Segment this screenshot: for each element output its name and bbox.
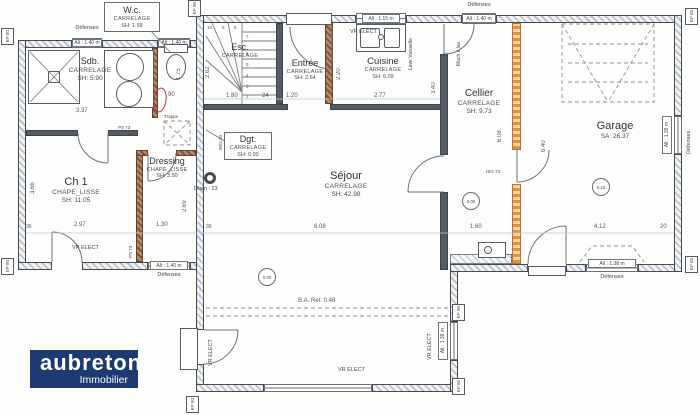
wall-garage-right-b [674, 154, 682, 272]
defenses-label: Défenses [686, 118, 692, 154]
vr-elect-label: VR ELECT [208, 330, 214, 366]
dim: 90 [168, 92, 175, 98]
dim: 6.08 [497, 124, 503, 142]
room-label-wc: W.c. CARRELAGE SH: 1.58 [104, 2, 160, 32]
logo-name: aubreton [40, 352, 128, 374]
wall-top-sdb-b [102, 40, 158, 48]
defenses-text: Défenses [467, 2, 490, 8]
dim: 3.37 [76, 108, 88, 114]
room-area: SH: 6.09 [372, 74, 393, 81]
stair-step: 5 [246, 62, 249, 67]
room-name: Sdb. [81, 56, 100, 67]
room-label-entree: Entrée CARRELAGE SH: 2.64 [283, 58, 327, 82]
wall-top-esc [196, 15, 287, 23]
ep80-box: EP 80 [685, 256, 698, 273]
dim: 6.40 [541, 134, 547, 152]
wall-top-entree-cuisine [331, 15, 356, 23]
level-marker-garage: 0.22 [592, 178, 610, 196]
iso73-label: ISO 73 [486, 169, 500, 174]
vr-elect-label: VR ELECT [350, 29, 377, 35]
sink-tap [378, 34, 384, 40]
level-marker-cellier: 0.00 [462, 192, 480, 210]
defenses-label: Défenses [148, 272, 190, 278]
wall-left [18, 40, 26, 270]
room-finish: CHAPE_LISSE [147, 167, 188, 174]
defenses-label: Défenses [462, 2, 496, 8]
wall-esc-entree [276, 23, 283, 104]
dim-text: 6.40 [541, 140, 547, 152]
garage-door-swing [562, 24, 654, 102]
dim-text: 1.20 [286, 93, 298, 99]
room-area: SH: 42.98 [332, 191, 361, 199]
dim: 2.77 [374, 93, 386, 99]
garage-service-door-frame [528, 266, 566, 276]
stair-step: 4 [246, 73, 249, 78]
wall-bottom-ch1-b [82, 262, 148, 270]
room-area: SH: 5.90 [77, 75, 102, 83]
dim-text: 3.37 [76, 108, 88, 114]
ep80-text: EP 80 [5, 260, 10, 272]
room-finish: CARRELAGE [325, 183, 368, 191]
ep80-text: EP 80 [456, 380, 461, 392]
room-finish: CHAPE_LISSE [52, 189, 100, 197]
vr-elect-label: VR ELECT [338, 367, 365, 373]
room-label-dressing: Dressing CHAPE_LISSE SH: 3.50 [140, 156, 194, 180]
room-finish: CARRELAGE [230, 145, 267, 152]
window-garage-right [674, 116, 682, 154]
stair-step: 2 [246, 94, 249, 99]
dim: 2.62 [205, 60, 211, 78]
dim-text: 1.60 [470, 224, 482, 230]
dim-text: 6.08 [314, 224, 326, 230]
defenses-label: Défenses [586, 274, 638, 280]
lave-vaisselle-label: Lave Vaisselle [408, 28, 414, 70]
ps73-label: PS 73 [118, 125, 130, 130]
entry-door-frame [286, 13, 332, 25]
window-alt-label: Alt : 1.40 m [150, 261, 188, 270]
vr-text: VR ELECT [338, 367, 365, 373]
wall-bottom-cellier [450, 264, 528, 272]
vr-text: VR ELECT [72, 245, 99, 251]
dim: 1.30 [156, 222, 168, 228]
dim: 3.66 [30, 176, 36, 194]
window-alt-label: Alt : 1.38 m [588, 259, 636, 268]
window-bay-sejour [264, 384, 372, 392]
mach-a-laver-text: Mach à lav. [456, 41, 462, 66]
window-sejour-right [450, 322, 458, 360]
dgt-leader-line [206, 130, 226, 142]
dim-text: 24 [262, 93, 269, 99]
wall-garage-right-a [674, 15, 682, 116]
wall-sejour-bottom-b [372, 384, 458, 392]
aubreton-logo: aubreton Immobilier [30, 350, 138, 388]
ba-ret-text: B.A. Ret: 0.48 [298, 298, 335, 304]
diam-text: Diam : 23 [194, 186, 218, 192]
room-label-sdb: Sdb. CARRELAGE SH: 5.90 [58, 56, 122, 82]
wall-top-garage [496, 15, 682, 23]
window-alt-label: Alt : 1.40 m [72, 39, 102, 47]
cellier-basin-drain [484, 246, 492, 254]
window-alt-label: Alt : 1.38 m [662, 116, 672, 154]
dim-text: 36 [26, 224, 32, 230]
stair-step: 1 [246, 103, 249, 108]
toilet-tank [164, 44, 188, 53]
stairs-treads [206, 23, 276, 104]
defenses-text: Défenses [157, 272, 180, 278]
room-name: Cuisine [367, 56, 399, 67]
door-size-label: 90/2.10 [218, 120, 223, 150]
ep80-text: EP 80 [192, 2, 197, 14]
wall-top-cuisine-cellier [406, 15, 462, 23]
dim: 6.08 [314, 224, 326, 230]
dim: 24 [262, 93, 269, 99]
stair-step: 10 [207, 25, 212, 30]
ep80-box: EP 80 [452, 304, 465, 321]
duct-circle [204, 172, 216, 184]
dim: 1.60 [470, 224, 482, 230]
wall-sejour-top-b [330, 104, 442, 110]
door-arc-sejour-cellier [408, 156, 444, 192]
room-area: SH: 9.73 [466, 108, 491, 116]
dim: 36 [26, 224, 32, 230]
room-label-cellier: Cellier CARRELAGE SH: 9.73 [450, 88, 508, 116]
wall-top-sdb-a [18, 40, 72, 48]
door-arc-sdb-ch1 [78, 133, 108, 163]
room-finish: CARRELAGE [458, 100, 501, 108]
door-arc-garage-service [528, 226, 566, 264]
room-area: SH: 3.50 [156, 173, 177, 180]
window-alt-label: Alt : 1.15 m [362, 14, 400, 23]
ep80-box: EP 80 [452, 378, 465, 395]
dim-text: 1.30 [156, 222, 168, 228]
dim: 20 [660, 224, 667, 230]
mach-a-laver-label: Mach à lav. [456, 28, 462, 66]
ep80-text: EP 80 [689, 258, 694, 270]
room-finish: CARRELAGE [365, 67, 402, 74]
defenses-label: Défenses [70, 25, 104, 31]
alt-text: Alt : 1.38 m [599, 261, 624, 267]
stair-step: 3 [246, 84, 249, 89]
vr-text: VR ELECT [350, 29, 377, 35]
room-label-ch1: Ch 1 CHAPE_LISSE SH: 11.05 [44, 176, 108, 205]
room-finish: CARRELAGE [114, 16, 151, 23]
trappe-label: Trappe [164, 114, 178, 119]
room-finish: CARRELAGE [69, 67, 112, 75]
level-value: 0.00 [467, 199, 476, 204]
level-marker-sejour: 0.00 [258, 268, 276, 286]
room-area: SH: 11.05 [62, 197, 90, 205]
defenses-text: Défenses [686, 131, 692, 154]
wall-insulation-a [512, 23, 521, 150]
dim-text: 2.77 [374, 93, 386, 99]
wall-sejour-bottom-a [196, 384, 264, 392]
ep80-box: EP 80 [186, 396, 199, 413]
floor-plan: Alt : 1.40 m Alt : 1.40 m Alt : 1.15 m A… [0, 0, 700, 415]
diam-label: Diam : 23 [194, 186, 218, 192]
room-label-sejour: Séjour CARRELAGE SH: 42.98 [316, 170, 376, 199]
trappe-text: Trappe [164, 114, 178, 119]
wall-sejour-left-a [196, 15, 204, 330]
dim-text: 36 [206, 224, 212, 230]
wall-sdb-ch1-a [26, 130, 78, 136]
room-name: Entrée [292, 58, 319, 69]
ep80-text: EP 80 [689, 10, 694, 22]
logo-tagline: Immobilier [40, 375, 128, 386]
stair-step: 9 [222, 25, 225, 30]
dim-text: 2.20 [336, 68, 342, 80]
dim-text: 3.66 [30, 182, 36, 194]
iso73-text: ISO 73 [486, 169, 500, 174]
dim: 36 [206, 224, 212, 230]
room-name: W.c. [123, 5, 141, 16]
room-name: Dgt. [240, 134, 257, 145]
wall-sdb-ch1-b [108, 130, 138, 136]
dim: 1.80 [226, 93, 238, 99]
ep80-box: EP 80 [1, 258, 14, 275]
dim: 1.75 [176, 64, 182, 80]
room-name: Cellier [465, 88, 493, 100]
room-finish: CARRELAGE [222, 53, 259, 60]
dim-text: 2.62 [205, 66, 211, 78]
dim: 2.20 [336, 62, 342, 80]
room-label-cuisine: Cuisine CARRELAGE SH: 6.09 [358, 56, 408, 81]
ep80-text: EP 80 [456, 306, 461, 318]
dim-text: 20 [660, 224, 667, 230]
dim: 3.40 [431, 76, 437, 94]
level-value: 0.00 [263, 275, 272, 280]
dim: 4.12 [594, 224, 606, 230]
dim-text: 90 [168, 92, 175, 98]
room-name: Garage [597, 120, 634, 133]
room-name: Ch 1 [64, 176, 87, 189]
ps73-label: PS 73 [128, 230, 133, 258]
ep80-box: EP 80 [1, 28, 14, 45]
ba-ret-label: B.A. Ret: 0.48 [298, 298, 335, 304]
washbasin-2 [116, 81, 142, 107]
wall-bottom-ch1-a [18, 262, 52, 270]
wall-insulation-b [512, 184, 521, 264]
door-size-text: 90/2.10 [218, 135, 223, 150]
room-area: SH: 0.99 [237, 152, 258, 159]
dimension-lines [26, 99, 674, 233]
cellier-basin [478, 242, 506, 258]
ep80-box: EP 80 [188, 0, 201, 17]
level-value: 0.22 [597, 185, 606, 190]
ba-retaining-lines [206, 308, 448, 316]
room-finish: CARRELAGE [287, 69, 324, 76]
trappe-hatch-box [164, 121, 190, 145]
room-area: SH: 2.64 [294, 75, 315, 82]
room-area: SH: 1.58 [121, 23, 142, 30]
sejour-side-door-frame [180, 328, 198, 370]
dim-text: 2.69 [182, 200, 188, 212]
window-alt-label: Alt : 1.40 m [462, 14, 496, 23]
alt-text: Alt : 1.40 m [156, 263, 181, 269]
dim-text: 6.08 [497, 130, 503, 142]
alt-text: Alt : 1.38 m [664, 122, 670, 147]
dim: 2.97 [74, 222, 86, 228]
alt-text: Alt : 1.38 m [440, 328, 446, 353]
room-label-garage: Garage SA: 26.37 [584, 120, 646, 141]
vr-elect-label: VR ELECT [72, 245, 99, 251]
alt-text: Alt : 1.40 m [74, 40, 99, 46]
wall-bottom-garage-a [566, 264, 586, 272]
defenses-text: Défenses [600, 274, 623, 280]
vr-elect-label: VR ELECT [427, 324, 433, 360]
ps73-text: PS 73 [118, 125, 130, 130]
dim-text: 1.75 [176, 68, 182, 80]
stair-step: 6 [246, 51, 249, 56]
dim-text: 2.97 [74, 222, 86, 228]
room-name: Séjour [330, 170, 362, 183]
vr-text: VR ELECT [208, 339, 214, 366]
dim: 1.20 [286, 93, 298, 99]
alt-text: Alt : 1.40 m [466, 16, 491, 22]
wall-cellier-left-b [440, 192, 448, 270]
ps73-text: PS 73 [128, 246, 133, 258]
ep80-text: EP 80 [190, 398, 195, 410]
window-alt-label: Alt : 1.38 m [438, 322, 448, 360]
dim-text: 4.12 [594, 224, 606, 230]
vr-text: VR ELECT [427, 333, 433, 360]
dim: 2.69 [182, 194, 188, 212]
alt-text: Alt : 1.15 m [368, 16, 393, 22]
door-arc-cellier-garage [517, 150, 549, 182]
room-area: SA: 26.37 [601, 133, 630, 141]
stair-step: 8 [234, 25, 237, 30]
sink-drainer [384, 28, 400, 48]
defenses-text: Défenses [75, 25, 98, 31]
ep80-text: EP 80 [5, 30, 10, 42]
room-name: Dressing [149, 156, 185, 167]
lave-vaisselle-text: Lave Vaisselle [408, 38, 414, 70]
room-label-dgt: Dgt. CARRELAGE SH: 0.99 [224, 132, 272, 160]
ep80-box: EP 80 [685, 8, 698, 25]
wall-cellier-left-a [440, 54, 448, 155]
room-label-esc: Esc. CARRELAGE [218, 42, 262, 59]
stair-step: 7 [246, 34, 249, 39]
dim-text: 3.40 [431, 82, 437, 94]
dim-text: 1.80 [226, 93, 238, 99]
